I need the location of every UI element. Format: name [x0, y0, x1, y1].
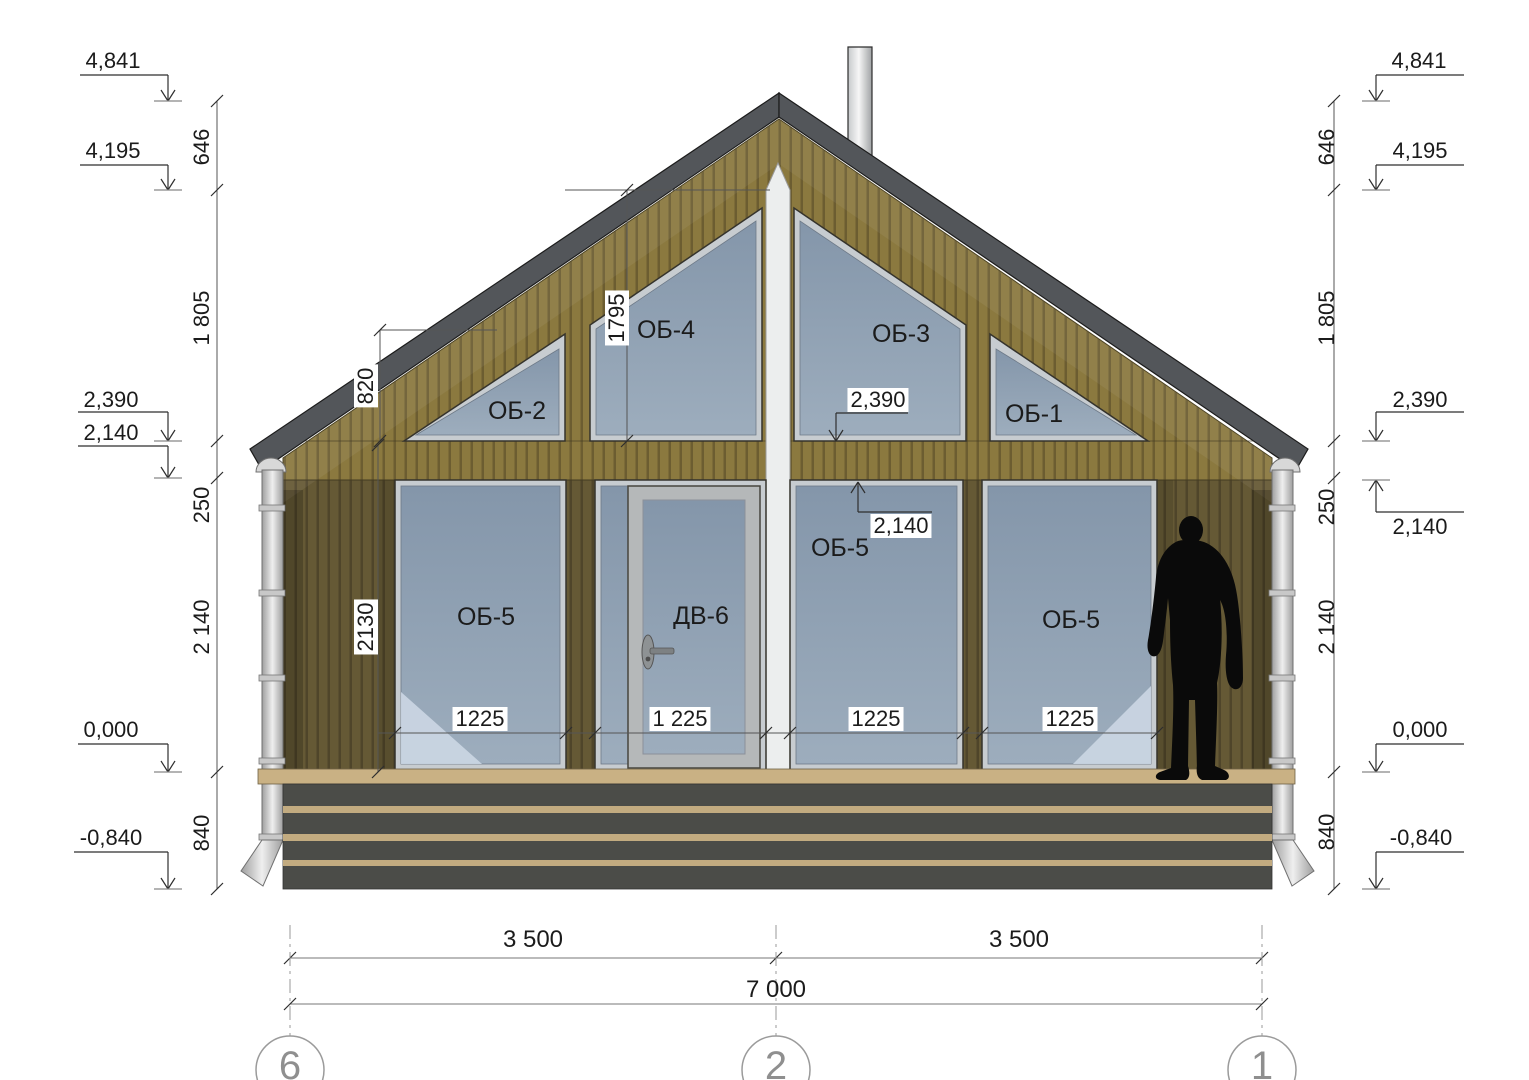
label-ob4: ОБ-4 — [637, 318, 695, 342]
width-label-1: 1225 — [453, 707, 508, 731]
vdim-right-2140: 2 140 — [1315, 599, 1339, 654]
label-ob1: ОБ-1 — [1005, 402, 1063, 426]
grid-number-1: 1 — [1251, 1054, 1273, 1078]
elevation-marks-left — [74, 75, 182, 889]
center-flue-strip — [766, 163, 790, 770]
elev-left-4195: 4,195 — [85, 139, 140, 163]
elevation-marks-right — [1362, 75, 1464, 889]
house-elevation-svg — [0, 0, 1529, 1080]
elev-left-2390: 2,390 — [83, 388, 138, 412]
gutter-downspout-left — [241, 458, 286, 886]
width-label-3: 1225 — [849, 707, 904, 731]
dim-label-1795: 1795 — [605, 291, 629, 346]
label-dv6: ДВ-6 — [673, 604, 729, 628]
width-label-2: 1 225 — [649, 707, 710, 731]
width-label-4: 1225 — [1043, 707, 1098, 731]
vdim-left-2140: 2 140 — [190, 599, 214, 654]
plinth-base — [283, 784, 1272, 889]
elev-right-4195: 4,195 — [1392, 139, 1447, 163]
vdim-right-840: 840 — [1315, 814, 1339, 851]
elev-right-0000: 0,000 — [1392, 718, 1447, 742]
dim-label-820: 820 — [354, 365, 378, 408]
elev-right-2140: 2,140 — [1392, 515, 1447, 539]
grid-number-2: 2 — [765, 1054, 787, 1078]
label-ob5-right: ОБ-5 — [1042, 608, 1100, 632]
vdim-left-1805: 1 805 — [190, 290, 214, 345]
vdim-right-1805: 1 805 — [1315, 290, 1339, 345]
bottom-dim-3500-left: 3 500 — [503, 928, 563, 952]
elev-left-0000: 0,000 — [83, 718, 138, 742]
elev-left-m0840: -0,840 — [80, 826, 142, 850]
elev-left-2140: 2,140 — [83, 421, 138, 445]
elev-right-4841: 4,841 — [1391, 49, 1446, 73]
vdim-left-250: 250 — [190, 487, 214, 524]
label-ob2: ОБ-2 — [488, 399, 546, 423]
vdim-left-646: 646 — [190, 129, 214, 166]
gutter-downspout-right — [1269, 458, 1314, 886]
elevation-drawing-canvas: 4,841 4,195 2,390 2,140 0,000 -0,840 4,8… — [0, 0, 1529, 1080]
bottom-dim-7000: 7 000 — [746, 978, 806, 1002]
elev-right-2390: 2,390 — [1392, 388, 1447, 412]
grid-number-6: 6 — [279, 1054, 301, 1078]
label-ob3: ОБ-3 — [872, 322, 930, 346]
elev-inner-2390: 2,390 — [847, 388, 908, 412]
window1-left-shadow — [378, 480, 395, 770]
vdim-right-250: 250 — [1315, 489, 1339, 526]
vdim-right-646: 646 — [1315, 129, 1339, 166]
right-corner-shadow — [1252, 490, 1272, 770]
label-ob5-left: ОБ-5 — [457, 605, 515, 629]
elev-right-m0840: -0,840 — [1390, 826, 1452, 850]
label-ob5-mid: ОБ-5 — [811, 536, 869, 560]
vdim-left-840: 840 — [190, 815, 214, 852]
house — [241, 47, 1314, 889]
dim-label-2130: 2130 — [354, 600, 378, 655]
bottom-dim-3500-right: 3 500 — [989, 928, 1049, 952]
left-corner-shadow — [283, 490, 303, 770]
elev-inner-2140: 2,140 — [870, 514, 931, 538]
elev-left-4841: 4,841 — [85, 49, 140, 73]
deck-board — [258, 769, 1295, 784]
